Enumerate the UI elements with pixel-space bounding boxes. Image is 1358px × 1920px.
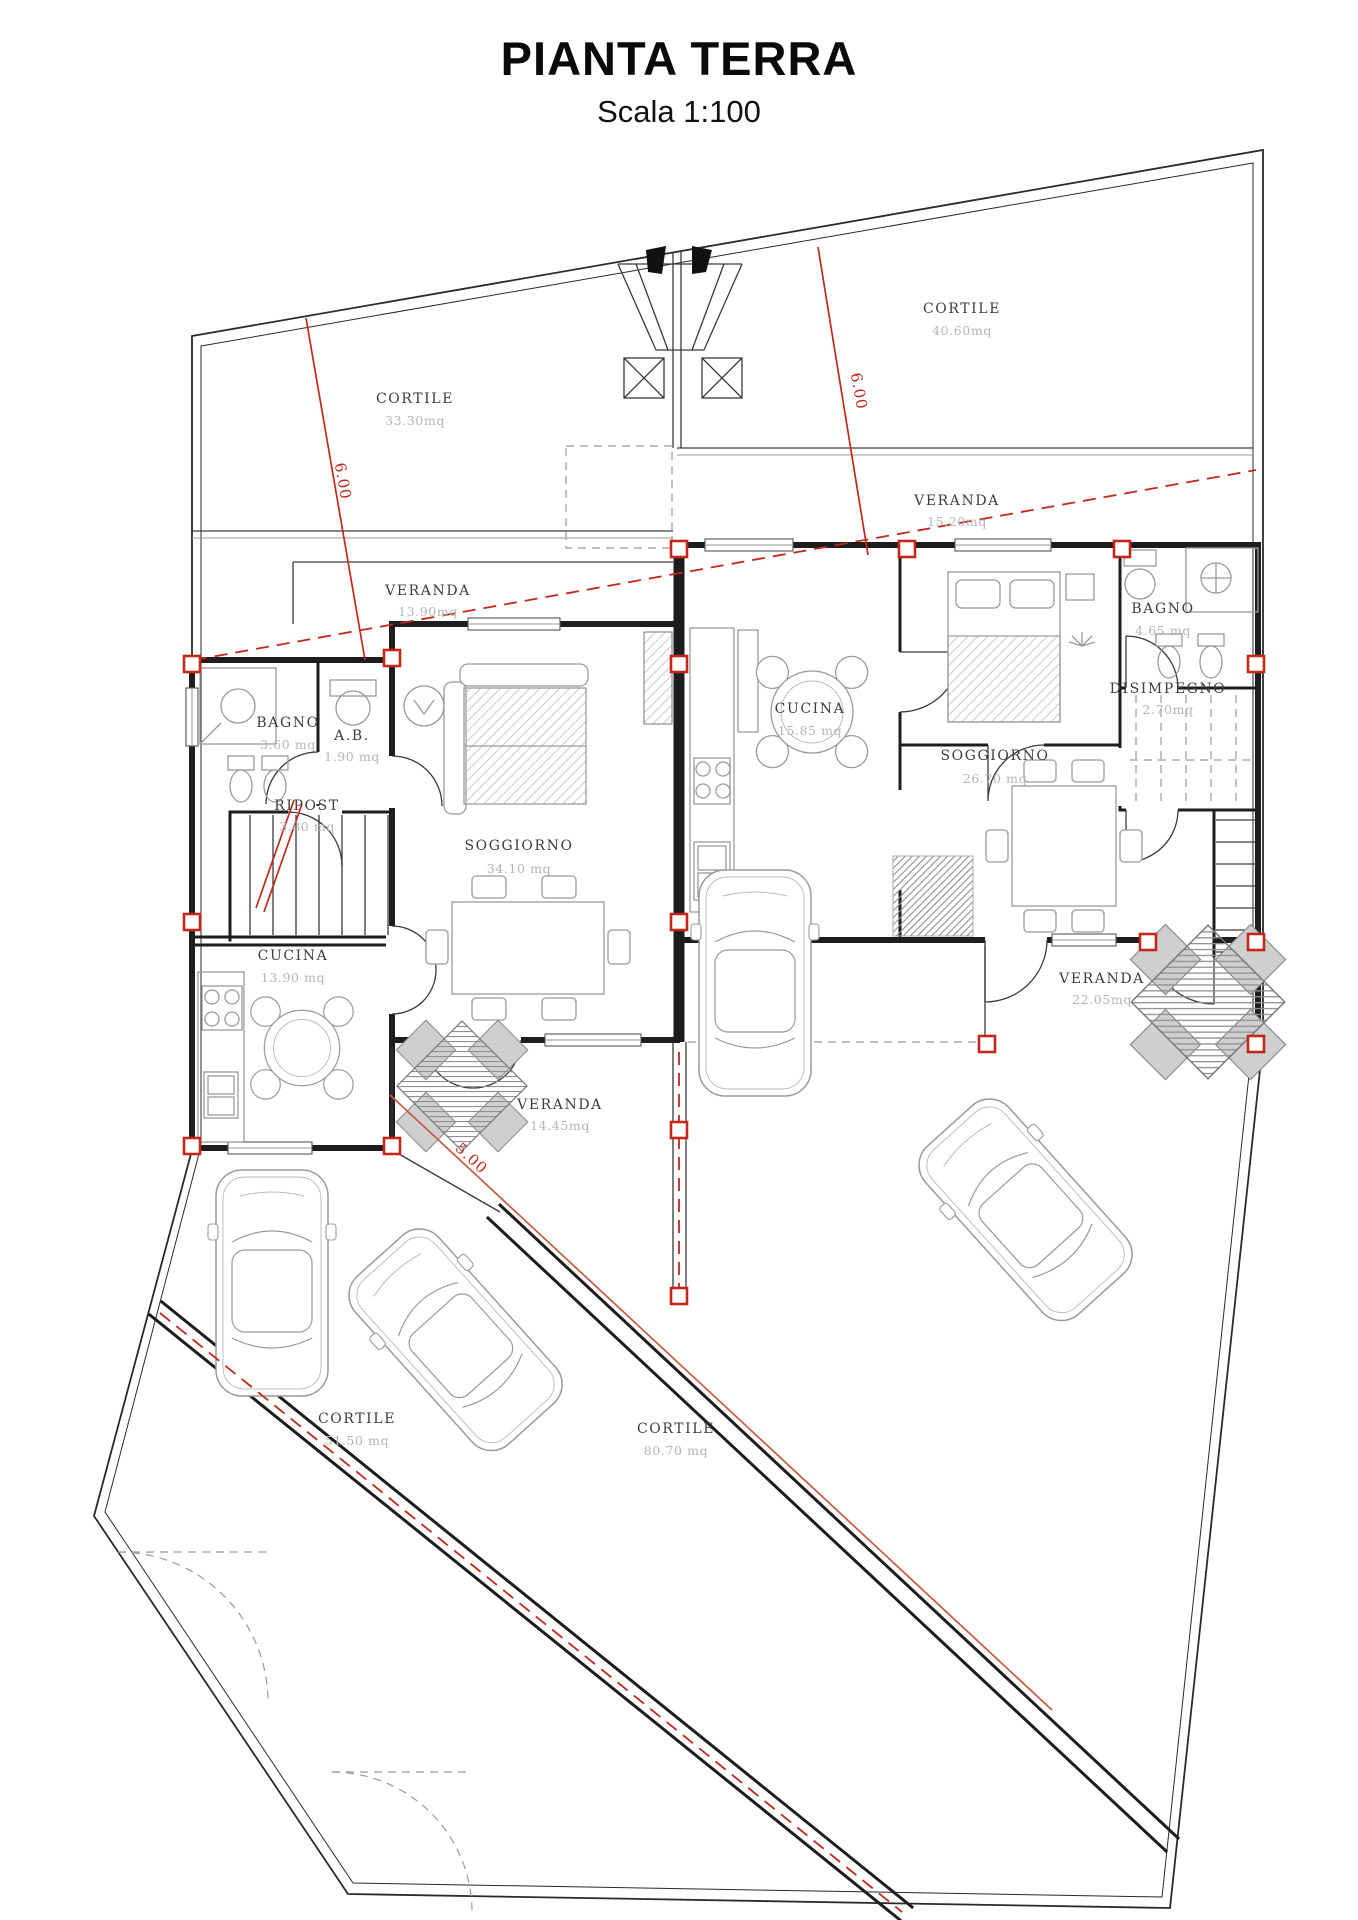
vent-box-icon — [624, 358, 742, 398]
bidet-icon — [1198, 634, 1224, 678]
dining-table-icon — [426, 876, 630, 1020]
room-area: 15.20mq — [927, 514, 987, 529]
room-label-soggiorno-left: SOGGIORNO 34.10 mq — [464, 838, 573, 876]
window — [705, 539, 793, 551]
chimney-icon — [618, 246, 742, 350]
room-area: 3.60 mq — [260, 737, 316, 752]
room-label-disimpegno: DISIMPEGNO 2.70mq — [1110, 681, 1227, 717]
window — [186, 688, 198, 746]
kitchen-sink-icon — [204, 1072, 238, 1118]
shower-icon — [1186, 548, 1258, 612]
room-label-bagno-left: BAGNO 3.60 mq — [256, 715, 319, 752]
doormat — [893, 856, 973, 936]
floor-plan-drawing: CORTILE 33.30mq CORTILE 40.60mq VERANDA … — [0, 0, 1358, 1920]
dimension-label: 6.00 — [847, 371, 871, 411]
page-scale: Scala 1:100 — [597, 94, 761, 129]
door-arc — [392, 756, 442, 806]
room-area: 15.85 mq — [778, 723, 842, 738]
room-label-veranda-right-bottom: VERANDA 22.05mq — [1058, 971, 1145, 1007]
gate-arc — [118, 1552, 268, 1702]
room-label-ab: A.B. 1.90 mq — [324, 728, 380, 764]
page-title: PIANTA TERRA — [501, 32, 858, 85]
overhang-dashed-outline — [566, 446, 672, 548]
room-label-veranda-top-right: VERANDA 15.20mq — [913, 493, 1000, 529]
room-area: 26.70 mq — [963, 771, 1027, 786]
room-name: BAGNO — [1131, 601, 1194, 617]
room-name: DISIMPEGNO — [1110, 681, 1227, 697]
plant-icon — [1069, 632, 1095, 646]
room-name: VERANDA — [516, 1097, 603, 1113]
stove-icon — [202, 986, 242, 1030]
title-block: PIANTA TERRA Scala 1:100 — [501, 32, 858, 129]
room-label-veranda-left: VERANDA 13.90mq — [384, 583, 471, 619]
room-name: CUCINA — [258, 948, 329, 964]
room-label-bagno-right: BAGNO 4.65 mq — [1131, 601, 1194, 638]
room-label-cortile-bottom-left: CORTILE 51.50 mq — [318, 1411, 396, 1448]
door-arc — [985, 940, 1047, 1002]
dimension-label: 6.00 — [331, 461, 355, 501]
room-area: 22.05mq — [1072, 992, 1132, 1007]
floor-lamp-icon — [404, 686, 444, 726]
room-label-cortile-top-right: CORTILE 40.60mq — [923, 301, 1001, 338]
door-arc — [392, 970, 436, 1014]
room-name: CORTILE — [923, 301, 1001, 317]
room-area: 13.90mq — [398, 604, 458, 619]
room-name: SOGGIORNO — [940, 748, 1049, 764]
door-arc — [266, 752, 318, 804]
section-marker-icon — [646, 246, 666, 274]
room-name: VERANDA — [913, 493, 1000, 509]
room-name: BAGNO — [256, 715, 319, 731]
room-label-cortile-bottom-center: CORTILE 80.70 mq — [637, 1421, 715, 1458]
nightstand-icon — [1066, 574, 1094, 600]
bookshelf-icon — [644, 632, 672, 724]
window — [1052, 934, 1116, 946]
gate-arc — [332, 1772, 472, 1912]
room-area: 2.70mq — [1142, 702, 1193, 717]
room-name: CORTILE — [637, 1421, 715, 1437]
floor-plan-canvas: CORTILE 33.30mq CORTILE 40.60mq VERANDA … — [0, 0, 1358, 1920]
kitchen-left-counter — [198, 972, 244, 1142]
car-icon — [902, 1083, 1148, 1337]
setback-dashed-line — [194, 470, 1256, 660]
room-area: 1.90 mq — [324, 749, 380, 764]
toilet-icon — [228, 756, 254, 802]
car-icon — [332, 1213, 578, 1467]
room-area: 80.70 mq — [644, 1443, 708, 1458]
room-area: 4.65 mq — [1135, 623, 1191, 638]
room-label-cortile-top-left: CORTILE 33.30mq — [376, 391, 454, 428]
sofa-icon — [444, 664, 588, 814]
car-icon — [208, 1170, 336, 1396]
room-name: CORTILE — [318, 1411, 396, 1427]
room-area: 51.50 mq — [325, 1433, 389, 1448]
room-name: SOGGIORNO — [464, 838, 573, 854]
room-name: CUCINA — [775, 701, 846, 717]
stove-icon — [694, 758, 730, 804]
room-area: 40.60mq — [932, 323, 992, 338]
bed-icon — [948, 572, 1095, 722]
gate-arcs — [118, 1552, 472, 1912]
room-name: A.B. — [333, 728, 370, 744]
room-area: 34.10 mq — [487, 861, 551, 876]
room-label-veranda-left-bottom: VERANDA 14.45mq — [516, 1097, 603, 1133]
room-area: 3.80 mq — [279, 819, 335, 834]
bidet-icon — [262, 756, 288, 802]
window — [228, 1142, 312, 1154]
window — [468, 618, 560, 630]
room-area: 14.45mq — [530, 1118, 590, 1133]
room-area: 33.30mq — [385, 413, 445, 428]
sink-icon — [330, 680, 376, 725]
window — [545, 1034, 641, 1046]
section-marker-icon — [692, 246, 712, 274]
car-icon — [691, 870, 819, 1096]
window — [955, 539, 1051, 551]
room-area: 13.90 mq — [261, 970, 325, 985]
room-name: RIPOST — [274, 798, 340, 814]
room-label-cucina-left: CUCINA 13.90 mq — [258, 948, 329, 985]
room-name: CORTILE — [376, 391, 454, 407]
cabinet-icon — [738, 630, 758, 732]
toilet-icon — [1156, 634, 1182, 678]
room-name: VERANDA — [1058, 971, 1145, 987]
room-name: VERANDA — [384, 583, 471, 599]
